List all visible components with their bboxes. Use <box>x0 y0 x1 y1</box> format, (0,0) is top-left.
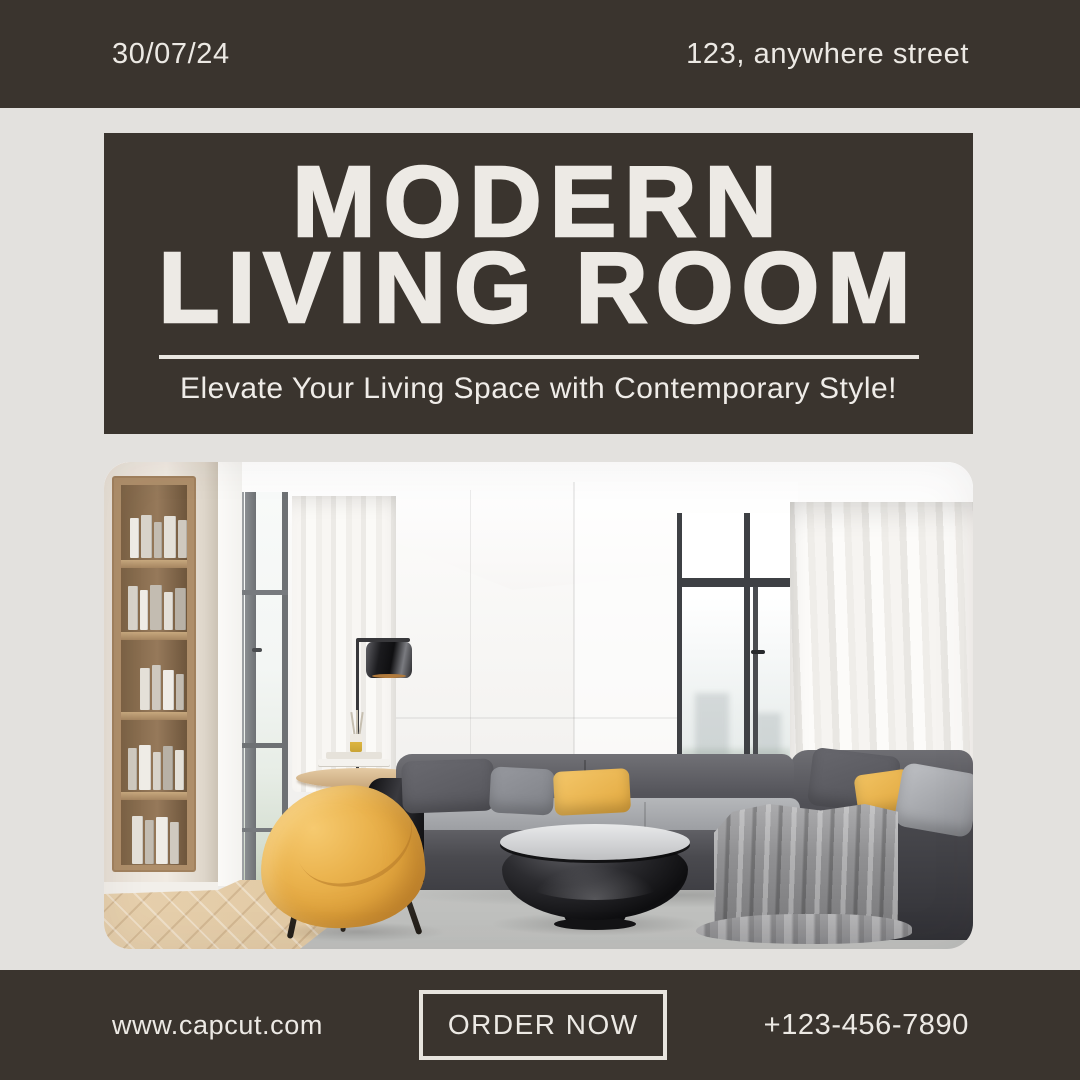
headline-block: MODERN LIVING ROOM Elevate Your Living S… <box>104 133 973 434</box>
phone-text: +123-456-7890 <box>764 1009 969 1042</box>
order-now-label: ORDER NOW <box>448 1009 639 1041</box>
title-line-2: LIVING ROOM <box>158 245 918 331</box>
date-text: 30/07/24 <box>112 38 230 71</box>
living-room-photo <box>104 462 973 949</box>
subtitle-text: Elevate Your Living Space with Contempor… <box>180 372 897 406</box>
website-text: www.capcut.com <box>112 1010 323 1041</box>
title-divider <box>159 355 919 359</box>
flyer-canvas: 30/07/24 123, anywhere street MODERN LIV… <box>0 0 1080 1080</box>
top-bar: 30/07/24 123, anywhere street <box>0 0 1080 108</box>
photo-vignette <box>104 462 973 949</box>
address-text: 123, anywhere street <box>686 38 969 71</box>
order-now-button[interactable]: ORDER NOW <box>419 990 667 1060</box>
bottom-bar: www.capcut.com ORDER NOW +123-456-7890 <box>0 970 1080 1080</box>
